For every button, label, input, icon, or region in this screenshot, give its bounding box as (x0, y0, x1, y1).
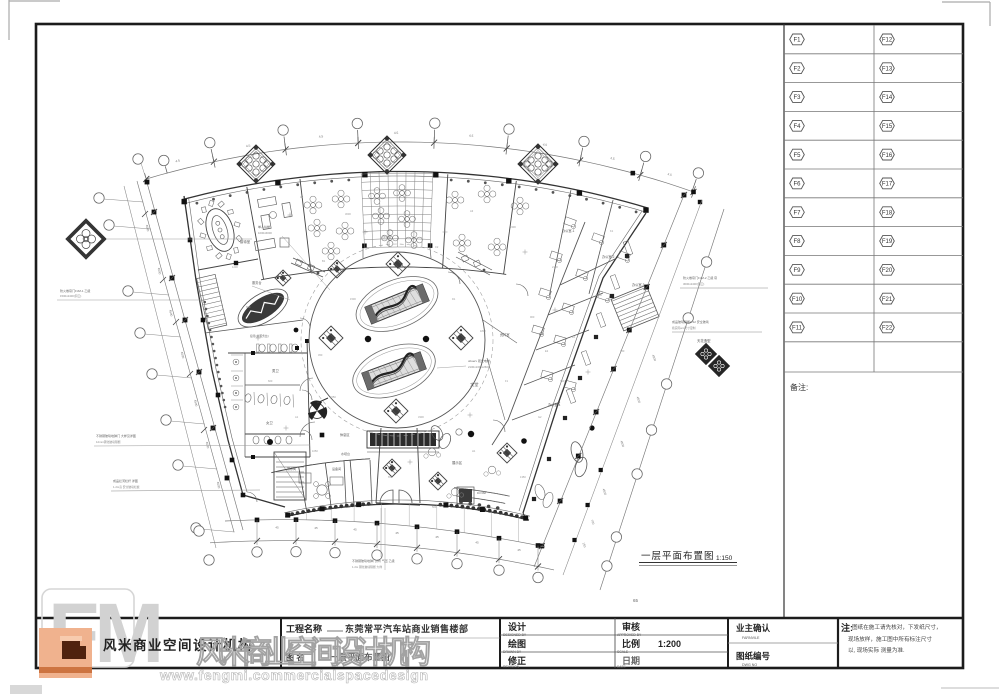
svg-text:东莞常平汽车站商业销售楼部: 东莞常平汽车站商业销售楼部 (345, 623, 469, 634)
svg-text:F18: F18 (882, 210, 893, 216)
svg-text:风米商业空间设计机构: 风米商业空间设计机构 (196, 635, 430, 670)
svg-text:F7: F7 (793, 210, 801, 216)
svg-text:2100: 2100 (552, 265, 558, 269)
svg-text:4.5: 4.5 (542, 142, 547, 147)
svg-text:F2: F2 (793, 66, 801, 72)
svg-text:65: 65 (633, 598, 639, 603)
svg-text:45: 45 (353, 528, 357, 532)
svg-text:业主确认: 业主确认 (736, 623, 771, 633)
svg-text:1000x6000: 1000x6000 (258, 231, 272, 235)
svg-text:45: 45 (314, 526, 318, 530)
svg-text:防火卷帘门FJM-1 乙级: 防火卷帘门FJM-1 乙级 (60, 288, 90, 293)
svg-text:F9: F9 (793, 268, 801, 274)
svg-text:A2: A2 (300, 195, 304, 199)
svg-text:女卫: 女卫 (266, 420, 273, 425)
svg-text:1200: 1200 (232, 265, 238, 269)
svg-text:1:200: 1:200 (658, 639, 681, 649)
svg-text:B1: B1 (322, 259, 326, 263)
svg-text:DWG NO: DWG NO (742, 663, 757, 667)
svg-text:男卫: 男卫 (272, 368, 279, 373)
svg-text:4.5: 4.5 (246, 144, 251, 149)
svg-text:D1: D1 (452, 297, 456, 301)
svg-text:设计: 设计 (508, 621, 526, 632)
svg-text:500: 500 (432, 505, 437, 509)
svg-text:茶水间: 茶水间 (287, 466, 296, 471)
svg-text:办公室-1: 办公室-1 (562, 228, 575, 233)
svg-text:工程名称: 工程名称 (286, 623, 322, 634)
svg-text:1.2m 钢化玻璃隔断 大样: 1.2m 钢化玻璃隔断 大样 (352, 565, 382, 569)
svg-text:图纸在施工请先核对，下发纸尺寸，: 图纸在施工请先核对，下发纸尺寸， (852, 623, 942, 631)
svg-text:不锈钢玻璃地弹门(详) 气压 乙级: 不锈钢玻璃地弹门(详) 气压 乙级 (352, 558, 395, 563)
svg-text:900: 900 (530, 315, 535, 319)
svg-text:750: 750 (560, 379, 565, 383)
svg-text:Di=368: Di=368 (477, 491, 486, 495)
svg-text:1050: 1050 (312, 449, 318, 453)
svg-text:350: 350 (620, 349, 625, 353)
svg-text:REVISION: REVISION (503, 665, 520, 669)
svg-text:2250: 2250 (330, 395, 336, 399)
svg-text:G2: G2 (538, 415, 542, 419)
svg-text:绘图: 绘图 (508, 638, 526, 649)
svg-text:1800: 1800 (480, 329, 486, 333)
svg-text:A1: A1 (295, 415, 299, 419)
svg-text:K1: K1 (610, 229, 614, 233)
svg-text:办公室-3: 办公室-3 (632, 282, 645, 287)
svg-text:资料室: 资料室 (500, 332, 510, 337)
svg-text:F11: F11 (792, 326, 803, 332)
svg-text:F16: F16 (882, 153, 893, 159)
svg-text:DATE: DATE (617, 665, 627, 669)
svg-text:接待(总服务台): 接待(总服务台) (250, 334, 269, 338)
svg-text:天花造型: 天花造型 (697, 338, 711, 343)
svg-text:4.5: 4.5 (469, 134, 474, 138)
svg-text:成品玻璃隔断t=12 安全玻璃: 成品玻璃隔断t=12 安全玻璃 (672, 319, 709, 324)
svg-text:E2: E2 (545, 349, 549, 353)
svg-text:45: 45 (475, 541, 479, 545)
svg-text:SCALE: SCALE (617, 650, 629, 654)
svg-text:不锈钢玻璃地弹门 大样见详图: 不锈钢玻璃地弹门 大样见详图 (96, 433, 136, 438)
svg-text:F13: F13 (882, 66, 893, 72)
svg-text:服务台: 服务台 (252, 280, 262, 285)
svg-text:2400: 2400 (510, 225, 516, 229)
svg-text:备注:: 备注: (790, 382, 808, 392)
svg-text:3300: 3300 (418, 415, 424, 419)
svg-text:F10: F10 (792, 297, 803, 303)
svg-text:1500x2400(洞口): 1500x2400(洞口) (60, 294, 81, 298)
svg-text:A3: A3 (470, 209, 474, 213)
svg-text:FARNVILE: FARNVILE (742, 636, 760, 640)
svg-text:DESIGNED BY: DESIGNED BY (503, 633, 527, 637)
svg-text:APPROVED BY: APPROVED BY (617, 633, 642, 637)
svg-text:办公室-2: 办公室-2 (602, 254, 615, 259)
svg-text:650: 650 (388, 475, 393, 479)
svg-text:F15: F15 (882, 124, 893, 130)
svg-text:45: 45 (517, 548, 521, 552)
svg-text:水吧台: 水吧台 (341, 451, 350, 456)
svg-text:45: 45 (435, 535, 439, 539)
svg-text:1:150: 1:150 (716, 555, 733, 562)
svg-text:H1: H1 (472, 449, 476, 453)
svg-text:F5: F5 (793, 153, 801, 159)
svg-text:F4: F4 (793, 124, 801, 130)
svg-text:图纸编号: 图纸编号 (736, 651, 771, 661)
svg-text:单人扶梯: 单人扶梯 (258, 224, 270, 229)
svg-text:600: 600 (268, 379, 273, 383)
svg-text:1350: 1350 (520, 475, 526, 479)
svg-text:www.fengmi.commercialspacedesi: www.fengmi.commercialspacedesign (159, 667, 428, 683)
svg-text:休息区: 休息区 (340, 432, 350, 437)
svg-text:接待室: 接待室 (240, 239, 251, 244)
svg-text:F19: F19 (882, 239, 893, 245)
svg-text:办公室-4: 办公室-4 (548, 402, 561, 407)
svg-text:审核: 审核 (622, 621, 640, 632)
svg-text:C2: C2 (435, 245, 439, 249)
svg-text:比例: 比例 (622, 638, 640, 649)
svg-text:1.2m高 安全玻璃栏板: 1.2m高 安全玻璃栏板 (113, 485, 140, 489)
svg-text:45: 45 (275, 526, 279, 530)
svg-text:F3: F3 (793, 95, 801, 101)
svg-text:F8: F8 (793, 239, 801, 245)
svg-text:成品拦河栏杆 详图: 成品拦河栏杆 详图 (113, 478, 138, 483)
svg-text:2100x1300x2600: 2100x1300x2600 (468, 365, 490, 369)
svg-text:现场放样，施工图中所有标注尺寸: 现场放样，施工图中所有标注尺寸 (848, 635, 932, 643)
svg-text:45: 45 (395, 531, 399, 535)
svg-text:F12: F12 (882, 38, 893, 44)
svg-text:4.5: 4.5 (319, 134, 324, 138)
svg-text:12mm钢化玻璃隔断: 12mm钢化玻璃隔断 (96, 440, 121, 444)
svg-text:800: 800 (246, 305, 251, 309)
svg-text:办公区: 办公区 (382, 234, 392, 239)
svg-text:F21: F21 (882, 297, 893, 303)
svg-text:F6: F6 (793, 182, 801, 188)
svg-text:一层平面布置图: 一层平面布置图 (641, 550, 715, 562)
svg-text:3000x2400(洞口): 3000x2400(洞口) (683, 282, 704, 286)
svg-text:F22: F22 (882, 326, 893, 332)
svg-text:F20: F20 (882, 268, 893, 274)
svg-text:observ 观光电梯: observ 观光电梯 (468, 358, 490, 363)
svg-text:F14: F14 (882, 95, 893, 101)
svg-text:展示区: 展示区 (452, 460, 463, 465)
svg-text:大堂: 大堂 (470, 381, 478, 388)
svg-text:设备间: 设备间 (332, 466, 341, 471)
svg-text:以, 现场实际 测量为准.: 以, 现场实际 测量为准. (848, 646, 905, 654)
svg-text:F1: F1 (793, 38, 801, 44)
svg-text:3000: 3000 (345, 212, 351, 216)
svg-text:DRAWN BY: DRAWN BY (503, 650, 522, 654)
svg-text:1500: 1500 (350, 297, 356, 301)
svg-text:防火卷帘门FJM-2 乙级 帘: 防火卷帘门FJM-2 乙级 帘 (683, 275, 717, 280)
svg-text:F17: F17 (882, 182, 893, 188)
svg-text:按实际am尺寸定制: 按实际am尺寸定制 (672, 326, 696, 330)
svg-text:2700: 2700 (596, 293, 602, 297)
svg-text:4.5: 4.5 (394, 131, 399, 135)
svg-text:450: 450 (318, 353, 323, 357)
